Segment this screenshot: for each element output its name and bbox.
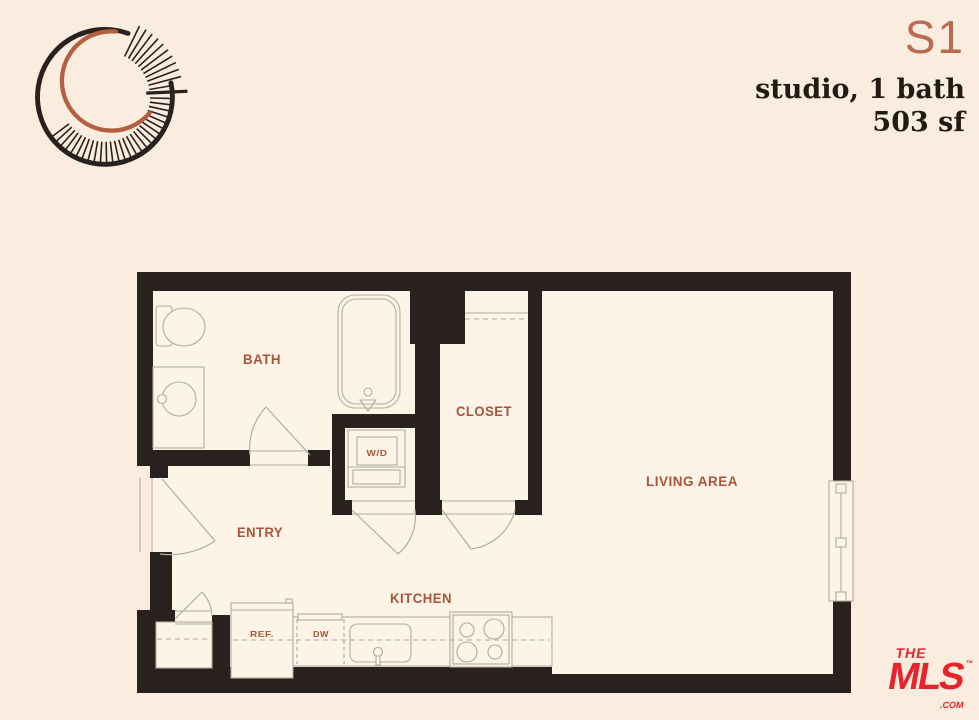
entry-closet (156, 622, 212, 668)
room-label-entry: ENTRY (237, 525, 283, 540)
kitchen-counter (293, 617, 552, 666)
room-label-closet: CLOSET (456, 404, 512, 419)
fixture-label-refrigerator: REF. (250, 629, 274, 639)
room-label-kitchen: KITCHEN (390, 591, 452, 606)
bath-vanity-sink (153, 367, 204, 448)
fixture-label-dishwasher: DW (313, 629, 329, 639)
floorplan-page: { "page": { "background": "#faeddf", "fl… (0, 0, 979, 720)
bathtub (338, 295, 400, 411)
mls-logo-name: MLS (885, 656, 967, 698)
kitchen-sink (350, 624, 411, 665)
window (829, 481, 853, 601)
dishwasher-front (298, 614, 342, 620)
mls-logo-domain: .COM (939, 700, 964, 710)
mls-logo: THEMLS™ .COM (882, 648, 971, 712)
floor-plan: BATH CLOSET ENTRY KITCHEN LIVING AREA W/… (0, 0, 979, 720)
room-label-living-area: LIVING AREA (646, 474, 738, 489)
washer-dryer-unit (348, 430, 405, 487)
toilet (156, 306, 205, 346)
room-label-bath: BATH (243, 352, 281, 367)
fixture-label-washer-dryer: W/D (367, 448, 388, 458)
mls-trademark: ™ (964, 659, 974, 668)
